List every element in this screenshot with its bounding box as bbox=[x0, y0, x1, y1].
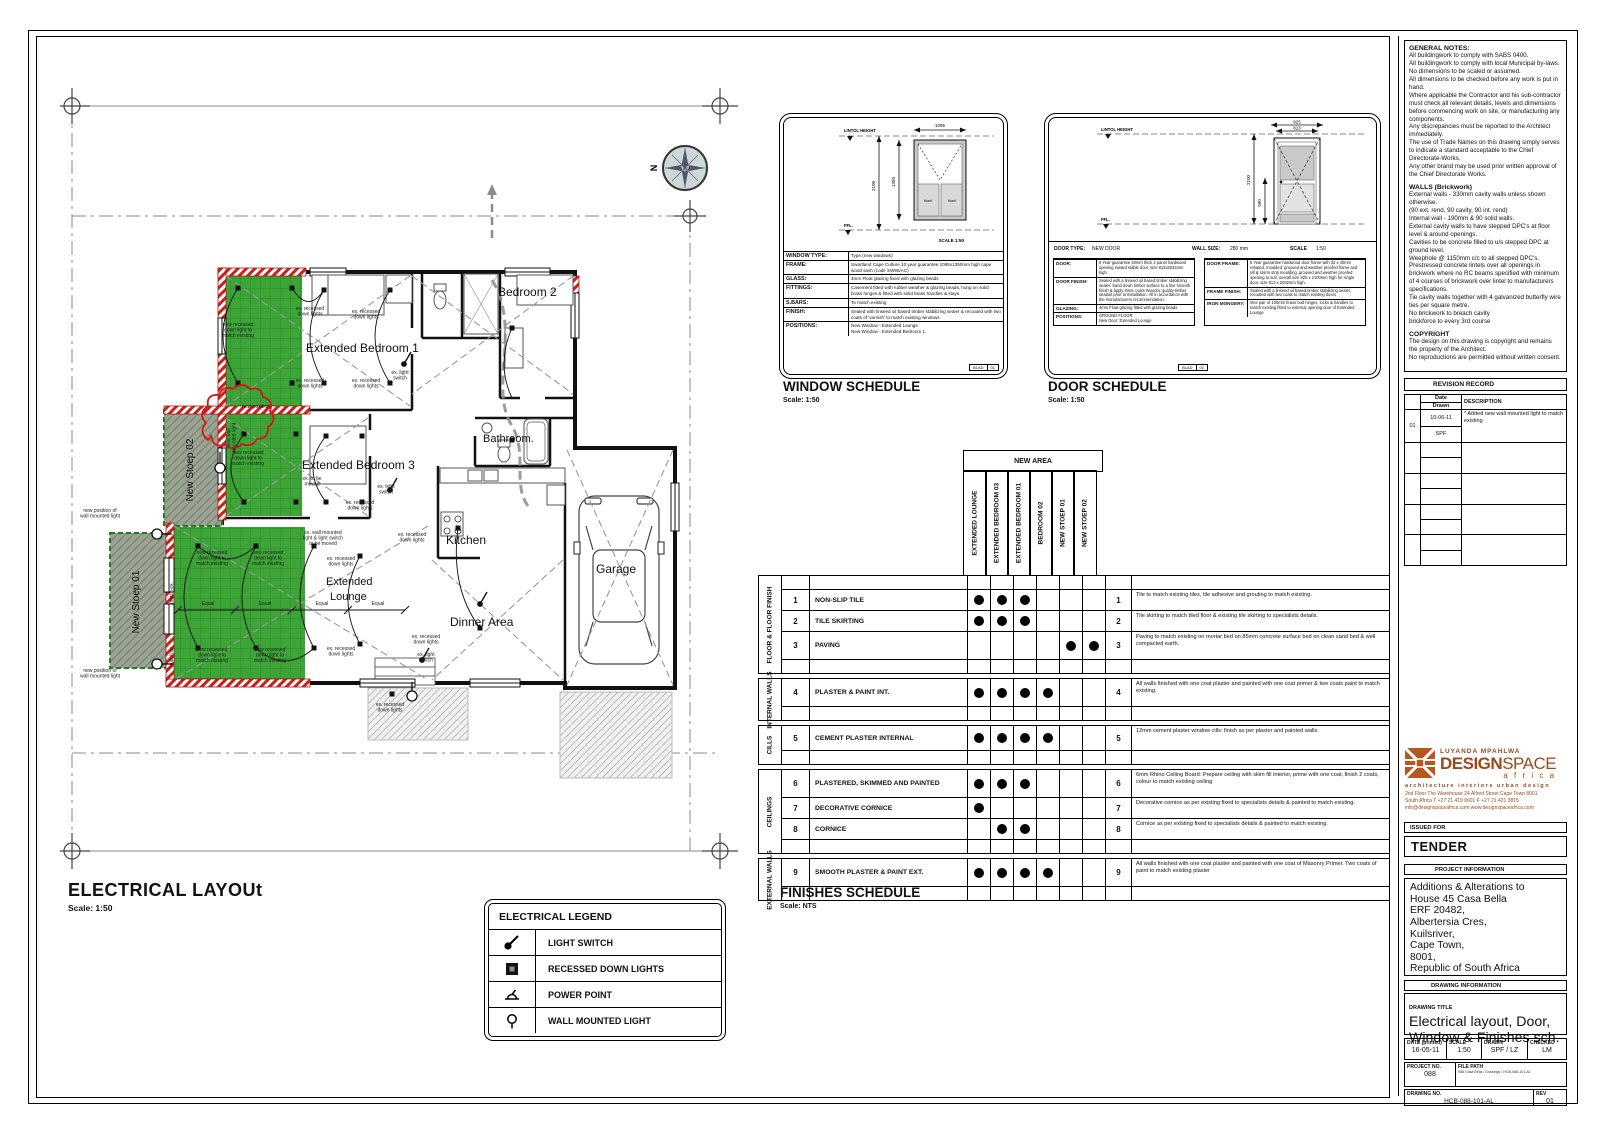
plan-annotation: ex. recesseddown lights bbox=[327, 646, 356, 658]
wall-mounted-light-icon bbox=[489, 1008, 536, 1033]
door-schedule-row: POSITIONS: GROUND FLOOR: New Door: Exten… bbox=[1054, 312, 1194, 325]
project-info-line: Republic of South Africa bbox=[1410, 963, 1561, 975]
door-schedule-header: DOOR TYPE: NEW DOOR WALL SIZE: 280 mm SC… bbox=[1049, 241, 1376, 255]
svg-text:fixed: fixed bbox=[948, 199, 956, 203]
door-row-value: GROUND FLOOR: New Door: Extended Lounge bbox=[1097, 313, 1194, 325]
note-paragraph: All buildingwork to comply with local Mu… bbox=[1409, 60, 1562, 68]
finishes-row: 9SMOOTH PLASTER & PAINT EXT.9All walls f… bbox=[782, 859, 1389, 886]
electrical-layout-plan: N bbox=[60, 88, 760, 878]
window-row-value: 4mm Float glazing fixed with glazing bea… bbox=[849, 275, 1003, 283]
door-row-label: FRAME FINISH: bbox=[1205, 288, 1248, 300]
finishes-groups: FLOOR & FLOOR FINISH1NON-SLIP TILE1Tile … bbox=[758, 575, 1390, 901]
finishes-group: CILLS5CEMENT PLASTER INTERNAL512mm cemen… bbox=[758, 725, 1390, 765]
note-paragraph: Any discrepancies must be reported to th… bbox=[1409, 123, 1562, 139]
finishes-row: 2TILE SKIRTING2Tile skirting to match ti… bbox=[782, 610, 1389, 631]
plan-title-text: ELECTRICAL LAYOUt bbox=[68, 880, 263, 900]
finish-dot bbox=[974, 803, 984, 813]
room-label: New Stoep 02 bbox=[185, 438, 196, 501]
plan-annotation: new recesseddown light tomatch existing bbox=[196, 550, 228, 567]
meta-row-3: DRAWING NO.HCB-088-101-AL REV01 bbox=[1404, 1089, 1567, 1106]
svg-text:N: N bbox=[649, 165, 659, 172]
svg-text:2100: 2100 bbox=[1246, 174, 1251, 185]
plan-annotation: Equal bbox=[202, 601, 215, 607]
finishes-column-header: EXTENDED LOUNGE bbox=[963, 470, 987, 576]
drawing-sheet: N bbox=[0, 0, 1600, 1131]
finish-dot bbox=[997, 616, 1007, 626]
note-paragraph: All buildingwork to comply with SABS 040… bbox=[1409, 52, 1562, 60]
project-info-line: ERF 20482, bbox=[1410, 905, 1561, 917]
ref-label: BLAD bbox=[970, 365, 987, 370]
electrical-legend: ELECTRICAL LEGEND LIGHT SWITCH RECESSED … bbox=[488, 903, 722, 1037]
finish-dot bbox=[974, 868, 984, 878]
note-paragraph: The design on this drawing is copyright … bbox=[1409, 338, 1562, 354]
meta-row-2: PROJECT NO.088 FILE PATH088 Casa Bella /… bbox=[1404, 1062, 1567, 1087]
note-section-title: GENERAL NOTES: bbox=[1409, 45, 1562, 52]
finishes-group: FLOOR & FLOOR FINISH1NON-SLIP TILE1Tile … bbox=[758, 575, 1390, 674]
door-row-value: 4mm Float glazing fitted with glazing be… bbox=[1097, 305, 1194, 312]
plan-scale: Scale: 1:50 bbox=[68, 903, 263, 913]
plan-annotation: ex. recesseddown lights bbox=[346, 500, 375, 512]
finishes-group: CEILINGS6PLASTERED, SKIMMED AND PAINTED6… bbox=[758, 769, 1390, 854]
finishes-category: CILLS bbox=[759, 726, 782, 764]
legend-label: RECESSED DOWN LIGHTS bbox=[536, 956, 721, 981]
door-row-value: 5 Year guarantee hardwood door frame wit… bbox=[1248, 260, 1365, 287]
project-info-line: Cape Town, bbox=[1410, 940, 1561, 952]
plan-annotation: ex. lightswitch bbox=[417, 652, 435, 664]
finishes-row: 5CEMENT PLASTER INTERNAL512mm cement pla… bbox=[782, 726, 1389, 750]
room-label: Dinner Area bbox=[450, 615, 514, 629]
svg-text:2100: 2100 bbox=[871, 180, 876, 191]
door-schedule-left-table: DOOR: 5 Year guarantee 40mm thick 2 pane… bbox=[1053, 258, 1195, 326]
window-schedule-row: FITTINGS: Casement fitted with rubber we… bbox=[784, 283, 1003, 297]
plan-annotation: ex. lightswitch bbox=[391, 370, 409, 382]
project-info-line: Albertersia Cres, bbox=[1410, 917, 1561, 929]
window-row-label: S.BARS: bbox=[784, 299, 849, 307]
room-label: Garage bbox=[596, 562, 636, 576]
revision-empty-row bbox=[1405, 474, 1566, 505]
plan-annotation: new recesseddown light tomatch existing bbox=[196, 647, 228, 664]
revision-empty-row bbox=[1405, 535, 1566, 565]
note-paragraph: brickforce to every 3rd course bbox=[1409, 318, 1562, 326]
svg-text:fixed: fixed bbox=[924, 199, 932, 203]
note-paragraph: Cavities to be concrete filled to u/s st… bbox=[1409, 239, 1562, 255]
finish-dot bbox=[974, 616, 984, 626]
revision-empty-row bbox=[1405, 505, 1566, 536]
finish-dot bbox=[974, 688, 984, 698]
door-row-label: GLAZING: bbox=[1054, 305, 1097, 312]
door-ref-box: BLAD 01 bbox=[1178, 364, 1208, 371]
finish-dot bbox=[1020, 733, 1030, 743]
finish-dot bbox=[1020, 868, 1030, 878]
ref-number: 01 bbox=[1197, 365, 1207, 370]
firm-logo-block: LUYANDA MPAHLWA DESIGNSPACE a f r i c a … bbox=[1405, 748, 1568, 811]
date-cell: DATE (printed)16-05-11 bbox=[1404, 1038, 1447, 1060]
firm-address: 2nd Floor The Warehouse 24 Alfred Street… bbox=[1405, 791, 1568, 811]
room-label: Extended Bedroom 3 bbox=[302, 458, 415, 472]
plan-annotation: ex. to bemoved bbox=[302, 476, 321, 488]
plan-annotation: ex. lightswitch bbox=[377, 484, 395, 496]
note-paragraph: Any other brand may be used prior writte… bbox=[1409, 163, 1562, 179]
finishes-column-header: EXTENDED BEDROOM 03 bbox=[985, 470, 1009, 576]
window-schedule-row: WINDOW TYPE: Type (new windows) bbox=[784, 251, 1003, 260]
drawing-title-line1: Electrical layout, Door, bbox=[1409, 1014, 1562, 1030]
door-row-label: POSITIONS: bbox=[1054, 313, 1097, 325]
flow-arrow-head bbox=[487, 184, 497, 195]
window-row-value: To match existing bbox=[849, 299, 1003, 307]
finishes-spacer-row bbox=[782, 576, 1389, 589]
revision-row: 01 10-06-11 SPF * Added new wall mounted… bbox=[1405, 410, 1566, 443]
legend-label: LIGHT SWITCH bbox=[536, 930, 721, 955]
legend-title: ELECTRICAL LEGEND bbox=[489, 904, 721, 930]
room-label: Extended Bedroom 1 bbox=[306, 341, 419, 355]
window-row-label: GLASS: bbox=[784, 275, 849, 283]
window-schedule-title: WINDOW SCHEDULE Scale: 1:50 bbox=[783, 378, 920, 404]
window-schedule-row: POSITIONS: New Window - Extended Lounge … bbox=[784, 321, 1003, 335]
drawn-cell: DRAWNSPF / LZ bbox=[1481, 1038, 1528, 1060]
finishes-column-label: EXTENDED BEDROOM 01 bbox=[1016, 483, 1023, 563]
project-info-line: House 45 Casa Bella bbox=[1410, 894, 1561, 906]
legend-label: WALL MOUNTED LIGHT bbox=[536, 1008, 721, 1033]
finishes-row: 8CORNICE8Cornice as per existing fixed t… bbox=[782, 818, 1389, 839]
note-section-title: WALLS (Brickwork) bbox=[1409, 184, 1562, 191]
finishes-category-label: CILLS bbox=[767, 736, 774, 755]
window-row-value: Swartland Cape Culture 10 year guarantee… bbox=[849, 261, 1003, 274]
note-paragraph: Internal wall - 190mm & 90 solid walls. bbox=[1409, 215, 1562, 223]
window-row-label: POSITIONS: bbox=[784, 322, 849, 335]
room-label: New Stoep 01 bbox=[131, 570, 142, 633]
finishes-spacer-row bbox=[782, 659, 1389, 673]
room-label: Extended bbox=[326, 576, 372, 588]
finishes-category-label: EXTERNAL WALLS bbox=[767, 850, 774, 909]
north-compass-icon: N bbox=[649, 146, 707, 190]
svg-text:990: 990 bbox=[1257, 199, 1262, 207]
plan-annotation: ex. recesseddown lights bbox=[352, 309, 381, 321]
finishes-group: INTERNAL WALLS4PLASTER & PAINT INT.4All … bbox=[758, 678, 1390, 721]
finishes-spacer-row bbox=[782, 706, 1389, 720]
finishes-row: 7DECORATIVE CORNICE7Decorative cornice a… bbox=[782, 797, 1389, 818]
window-row-label: FINISH: bbox=[784, 308, 849, 321]
legend-row: LIGHT SWITCH bbox=[489, 930, 721, 956]
meta-row-1: DATE (printed)16-05-11 SCALE1:50 DRAWNSP… bbox=[1404, 1038, 1567, 1060]
plan-annotation: ex. recesseddown lights bbox=[296, 378, 325, 390]
plan-annotation: new position bbox=[242, 404, 270, 410]
plan-annotation: ex. recesseddown lights bbox=[296, 306, 325, 318]
project-no-cell: PROJECT NO.088 bbox=[1404, 1062, 1456, 1087]
finishes-spacer-row bbox=[782, 750, 1389, 764]
window-row-value: Sealed with linseed oil based timber sta… bbox=[849, 308, 1003, 321]
window-schedule-rows: WINDOW TYPE: Type (new windows) FRAME: S… bbox=[784, 251, 1003, 336]
plan-title: ELECTRICAL LAYOUt Scale: 1:50 bbox=[68, 880, 263, 913]
window-row-value: New Window - Extended Lounge New Window … bbox=[849, 322, 1003, 335]
light-switch-icon bbox=[489, 930, 536, 955]
drawing-title-box: DRAWING TITLE Electrical layout, Door, W… bbox=[1404, 993, 1567, 1035]
door-schedule-row: DOOR: 5 Year guarantee 40mm thick 2 pane… bbox=[1054, 259, 1194, 277]
finishes-row: 3PAVING3Paving to match existing on mort… bbox=[782, 631, 1389, 659]
firm-name-sub: a f r i c a bbox=[1440, 772, 1556, 780]
window-row-label: FITTINGS: bbox=[784, 284, 849, 297]
project-info-line: 8001, bbox=[1410, 952, 1561, 964]
revision-header-row: Date Drawn DESCRIPTION bbox=[1405, 395, 1566, 410]
finish-dot bbox=[1066, 641, 1076, 651]
plan-annotation: new recesseddown light tomatch existing bbox=[254, 647, 286, 664]
finishes-category: EXTERNAL WALLS bbox=[759, 859, 782, 900]
door-row-label: DOOR FRAME: bbox=[1205, 260, 1248, 287]
file-path-cell: FILE PATH088 Casa Bella / Drawings / HCB… bbox=[1455, 1062, 1567, 1087]
svg-text:1095: 1095 bbox=[935, 123, 946, 128]
legend-row: RECESSED DOWN LIGHTS bbox=[489, 956, 721, 982]
legend-row: POWER POINT bbox=[489, 982, 721, 1008]
door-row-value: 5 Year guarantee 40mm thick 2 panel hard… bbox=[1097, 260, 1194, 277]
plan-annotation: match ex. bbox=[169, 645, 175, 667]
note-paragraph: No dimensions to be scaled or assumed. bbox=[1409, 68, 1562, 76]
plan-annotation: Equal bbox=[259, 601, 272, 607]
svg-text:FFL.: FFL. bbox=[1101, 217, 1110, 222]
plan-annotation: match ex. bbox=[169, 582, 175, 604]
door-row-label: DOOR FINISH: bbox=[1054, 278, 1097, 305]
window-schedule-row: FRAME: Swartland Cape Culture 10 year gu… bbox=[784, 260, 1003, 274]
new-area-header: NEW AREA bbox=[963, 450, 1103, 472]
note-paragraph: External cavity walls to have stepped DP… bbox=[1409, 223, 1562, 239]
note-paragraph: Prestressed concrete lintels over all op… bbox=[1409, 262, 1562, 294]
note-paragraph: All dimensions to be checked before any … bbox=[1409, 76, 1562, 92]
window-schedule-row: GLASS: 4mm Float glazing fixed with glaz… bbox=[784, 274, 1003, 283]
finish-dot bbox=[997, 868, 1007, 878]
finish-dot bbox=[974, 595, 984, 605]
finishes-column-label: EXTENDED BEDROOM 03 bbox=[994, 483, 1001, 563]
room-label: Lounge bbox=[330, 591, 367, 603]
finish-dot bbox=[974, 733, 984, 743]
window-elevation: LINTOL HEIGHT FFL. 2100 1350 1095 fixed … bbox=[784, 118, 1000, 246]
firm-name-main: DESIGNSPACE bbox=[1440, 755, 1556, 772]
finish-dot bbox=[1043, 733, 1053, 743]
svg-text:LINTOL HEIGHT: LINTOL HEIGHT bbox=[1101, 127, 1133, 132]
finishes-column-header: BEDROOM 02 bbox=[1029, 470, 1053, 576]
finishes-column-label: BEDROOM 02 bbox=[1038, 502, 1045, 545]
project-info-line: Additions & Alterations to bbox=[1410, 882, 1561, 894]
finish-dot bbox=[997, 688, 1007, 698]
issued-for-value: TENDER bbox=[1404, 836, 1567, 857]
finish-dot bbox=[974, 779, 984, 789]
plan-annotation: Equal bbox=[316, 601, 329, 607]
window-row-label: FRAME: bbox=[784, 261, 849, 274]
window-schedule-row: FINISH: Sealed with linseed oil based ti… bbox=[784, 307, 1003, 321]
firm-tagline: architecture interiors urban design bbox=[1405, 783, 1568, 789]
note-paragraph: Tie cavity walls together with 4 galvani… bbox=[1409, 294, 1562, 310]
window-row-value: Casement fitted with rubber weather & gl… bbox=[849, 284, 1003, 297]
door-schedule-right-table: DOOR FRAME: 5 Year guarantee hardwood do… bbox=[1204, 258, 1366, 326]
finish-dot bbox=[1020, 688, 1030, 698]
plan-annotation: new recesseddown light tomatch existing bbox=[222, 322, 254, 339]
plan-annotation: new position ofwall mounted light bbox=[80, 508, 121, 520]
new-area-lounge bbox=[174, 527, 305, 679]
plan-annotation: new position ofwall mounted light bbox=[80, 668, 121, 680]
finishes-row: 4PLASTER & PAINT INT.4All walls finished… bbox=[782, 679, 1389, 706]
note-paragraph: No reproductions are permitted without w… bbox=[1409, 354, 1562, 362]
finish-dot bbox=[1020, 595, 1030, 605]
room-label: Bedroom 2 bbox=[498, 285, 557, 299]
scale-cell: SCALE1:50 bbox=[1446, 1038, 1482, 1060]
finishes-category: FLOOR & FLOOR FINISH bbox=[759, 576, 782, 673]
window-ref-box: BLAD 01 bbox=[969, 364, 999, 371]
power-point-icon bbox=[489, 982, 536, 1007]
door-schedule-row: IRON MONGERY: One pair of 100mm brass bu… bbox=[1205, 299, 1365, 317]
finishes-schedule-title: FINISHES SCHEDULE Scale: NTS bbox=[780, 884, 920, 910]
finishes-category-label: INTERNAL WALLS bbox=[767, 671, 774, 728]
finishes-schedule: NEW AREA EXTENDED LOUNGEEXTENDED BEDROOM… bbox=[758, 450, 1390, 905]
plan-annotation: ex. recesseddown lights bbox=[352, 378, 381, 390]
plan-annotation: Equal bbox=[372, 601, 385, 607]
window-schedule-box: LINTOL HEIGHT FFL. 2100 1350 1095 fixed … bbox=[783, 117, 1004, 375]
svg-text:FFL.: FFL. bbox=[844, 223, 853, 228]
plan-annotation: ex. recesseddown lights bbox=[412, 634, 441, 646]
finish-dot bbox=[1089, 641, 1099, 651]
finish-dot bbox=[1043, 688, 1053, 698]
finishes-column-label: EXTENDED LOUNGE bbox=[972, 490, 979, 555]
drawing-title-label: DRAWING TITLE bbox=[1409, 1005, 1452, 1011]
finishes-column-label: NEW STOEP 02 bbox=[1082, 499, 1089, 547]
window-row-value: Type (new windows) bbox=[849, 252, 1003, 260]
finish-dot bbox=[1020, 616, 1030, 626]
finishes-header: NEW AREA EXTENDED LOUNGEEXTENDED BEDROOM… bbox=[758, 450, 1390, 575]
finishes-category: CEILINGS bbox=[759, 770, 782, 853]
checked-cell: CHECKEDLM bbox=[1527, 1038, 1567, 1060]
room-label: Bathroom. bbox=[483, 433, 534, 445]
svg-text:LINTOL HEIGHT: LINTOL HEIGHT bbox=[844, 128, 876, 133]
door-schedule-row: GLAZING: 4mm Float glazing fitted with g… bbox=[1054, 304, 1194, 312]
note-paragraph: Where applicable the Contractor and his … bbox=[1409, 92, 1562, 124]
svg-text:813: 813 bbox=[1293, 126, 1301, 131]
plan-annotation: new recesseddown light tomatch existing bbox=[252, 550, 284, 567]
note-paragraph: External walls - 330mm cavity walls unle… bbox=[1409, 191, 1562, 207]
svg-text:925: 925 bbox=[1293, 120, 1301, 125]
plan-annotation: ex. recesseddown lights bbox=[327, 556, 356, 568]
note-paragraph: No brickwork to breach cavity bbox=[1409, 310, 1562, 318]
finishes-column-header: NEW STOEP 01 bbox=[1051, 470, 1075, 576]
note-paragraph: Weephole @ 1150mm c/c to all stepped DPC… bbox=[1409, 255, 1562, 263]
finishes-column-label: NEW STOEP 01 bbox=[1060, 499, 1067, 547]
finishes-spacer-row bbox=[782, 839, 1389, 853]
finishes-category-label: CEILINGS bbox=[767, 796, 774, 827]
legend-row: WALL MOUNTED LIGHT bbox=[489, 1008, 721, 1033]
door-row-value: One pair of 100mm brass butt hinges, loc… bbox=[1248, 300, 1365, 317]
designspace-logo-icon bbox=[1405, 748, 1435, 778]
finish-dot bbox=[997, 779, 1007, 789]
door-row-label: DOOR: bbox=[1054, 260, 1097, 277]
legend-label: POWER POINT bbox=[536, 982, 721, 1007]
project-info: Additions & Alterations toHouse 45 Casa … bbox=[1404, 878, 1567, 976]
finish-dot bbox=[1043, 868, 1053, 878]
drawing-no-cell: DRAWING NO.HCB-088-101-AL bbox=[1404, 1089, 1534, 1106]
finish-dot bbox=[997, 824, 1007, 834]
general-notes-body: GENERAL NOTES:All buildingwork to comply… bbox=[1409, 45, 1562, 362]
finishes-column-header: NEW STOEP 02 bbox=[1073, 470, 1097, 576]
revision-record-header: REVISION RECORD bbox=[1404, 378, 1567, 391]
door-row-label: IRON MONGERY: bbox=[1205, 300, 1248, 317]
svg-text:SCALE 1:50: SCALE 1:50 bbox=[938, 238, 964, 243]
door-schedule-row: DOOR FINISH: Sealed with a linseed oil b… bbox=[1054, 277, 1194, 305]
finishes-column-header: EXTENDED BEDROOM 01 bbox=[1007, 470, 1031, 576]
rev-cell: REV01 bbox=[1533, 1089, 1567, 1106]
finish-dot bbox=[997, 733, 1007, 743]
note-paragraph: The use of Trade Names on this drawing s… bbox=[1409, 139, 1562, 163]
door-row-value: Sealed with a linseed oil based timber s… bbox=[1097, 278, 1194, 305]
finishes-row: 1NON-SLIP TILE1Tile to match existing ti… bbox=[782, 589, 1389, 610]
door-schedule-box: LINTOL HEIGHT FFL. 2100 990 925 813 bbox=[1048, 117, 1377, 375]
door-elevation: LINTOL HEIGHT FFL. 2100 990 925 813 bbox=[1049, 118, 1373, 236]
note-section-title: COPYRIGHT bbox=[1409, 331, 1562, 338]
door-schedule-row: DOOR FRAME: 5 Year guarantee hardwood do… bbox=[1205, 259, 1365, 287]
general-notes: GENERAL NOTES:All buildingwork to comply… bbox=[1404, 40, 1567, 372]
door-row-value: Sealed with a linseed oil based timber s… bbox=[1248, 288, 1365, 300]
note-paragraph: (90 ext. rend, 90 cavity, 90 int. rend) bbox=[1409, 207, 1562, 215]
finishes-row: 6PLASTERED, SKIMMED AND PAINTED66mm Rhin… bbox=[782, 770, 1389, 797]
finishes-category-label: FLOOR & FLOOR FINISH bbox=[767, 586, 774, 663]
project-info-label: PROJECT INFORMATION bbox=[1404, 864, 1567, 875]
plan-annotation: ex. recesseddown lights bbox=[376, 702, 405, 714]
recessed-downlight-icon bbox=[489, 956, 536, 981]
issued-for-label: ISSUED FOR bbox=[1404, 822, 1567, 833]
finish-dot bbox=[1020, 824, 1030, 834]
car bbox=[574, 496, 664, 664]
finishes-category: INTERNAL WALLS bbox=[759, 679, 782, 720]
revision-record-table: Date Drawn DESCRIPTION 01 10-06-11 SPF *… bbox=[1404, 394, 1567, 566]
finish-dot bbox=[1020, 779, 1030, 789]
drawing-info-label: DRAWING INFORMATION bbox=[1404, 980, 1567, 991]
plan-annotation: ex. recesseddown lights bbox=[398, 532, 427, 544]
door-schedule-title: DOOR SCHEDULE Scale: 1:50 bbox=[1048, 378, 1167, 404]
svg-text:1350: 1350 bbox=[891, 176, 896, 187]
window-schedule-row: S.BARS: To match existing bbox=[784, 298, 1003, 307]
finish-dot bbox=[997, 595, 1007, 605]
room-label: Kitchen bbox=[446, 533, 486, 547]
revision-empty-row bbox=[1405, 443, 1566, 474]
ref-number: 01 bbox=[988, 365, 998, 370]
door-schedule-row: FRAME FINISH: Sealed with a linseed oil … bbox=[1205, 287, 1365, 300]
ref-label: BLAD bbox=[1179, 365, 1196, 370]
title-block-column: GENERAL NOTES:All buildingwork to comply… bbox=[1398, 36, 1575, 1096]
project-info-line: Kuilsriver, bbox=[1410, 929, 1561, 941]
window-row-label: WINDOW TYPE: bbox=[784, 252, 849, 260]
